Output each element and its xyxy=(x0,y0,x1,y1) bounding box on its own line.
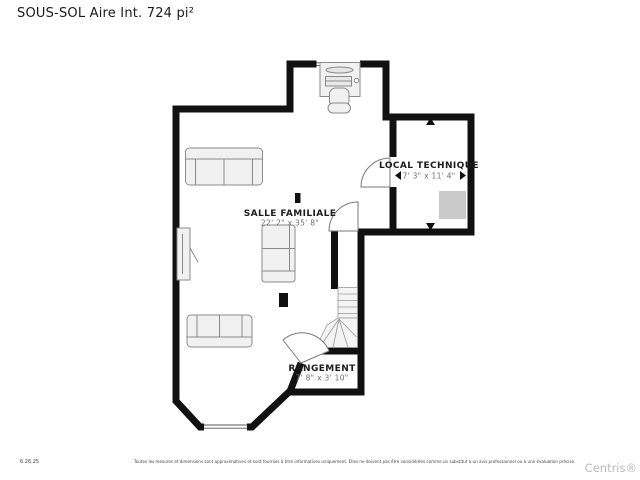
room-dims-salle-familiale: 22' 2" x 35' 8" xyxy=(261,219,319,228)
room-label-salle-familiale: SALLE FAMILIALE xyxy=(244,209,337,219)
loveseat xyxy=(262,225,295,282)
floorplan-page: SOUS-SOL Aire Int. 724 pi² xyxy=(0,0,640,480)
office-chair xyxy=(328,88,351,113)
monitor-icon xyxy=(326,67,353,73)
footer-date: 6.26.25 xyxy=(20,459,39,465)
room-label-local-technique: LOCAL TECHNIQUE xyxy=(379,161,479,171)
room-label-rangement: RANGEMENT xyxy=(288,364,356,374)
footer-disclaimer: Toutes les mesures et dimensions sont ap… xyxy=(134,459,634,464)
floorplan-drawing: SALLE FAMILIALE 22' 2" x 35' 8" LOCAL TE… xyxy=(0,0,640,480)
post xyxy=(279,293,288,307)
centris-watermark: Centris® xyxy=(585,461,637,475)
bay-window xyxy=(204,423,247,432)
sofa-top xyxy=(186,148,263,185)
furnace-equipment xyxy=(439,191,466,219)
mouse-icon xyxy=(354,78,358,82)
sofa-bottom xyxy=(187,315,252,347)
room-dims-local-technique: 7' 3" x 11' 4" xyxy=(402,172,455,181)
room-dims-rangement: 7' 8" x 3' 10" xyxy=(295,374,348,383)
post xyxy=(295,193,301,203)
